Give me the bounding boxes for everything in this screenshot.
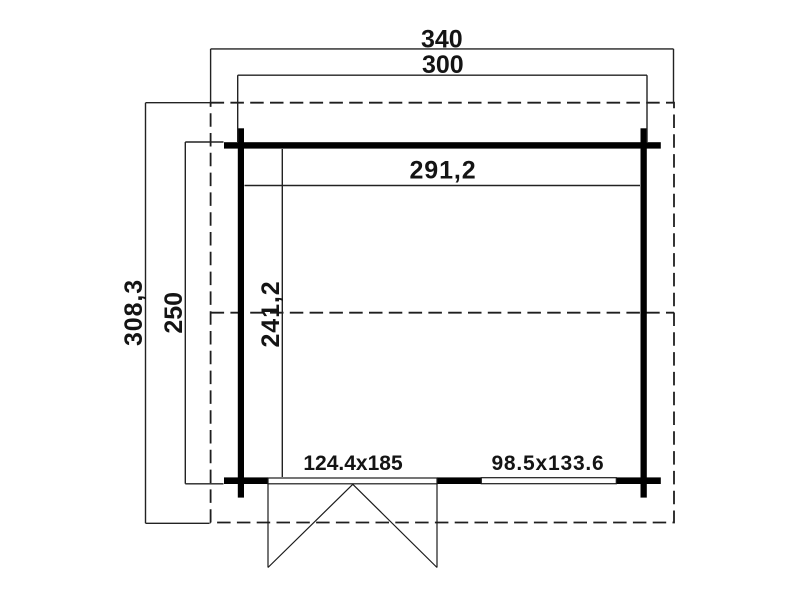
svg-text:340: 340 (421, 25, 463, 53)
svg-text:300: 300 (422, 51, 464, 79)
svg-text:308,3: 308,3 (120, 279, 148, 346)
svg-text:291,2: 291,2 (409, 157, 476, 185)
svg-text:250: 250 (160, 292, 188, 334)
svg-text:98.5x133.6: 98.5x133.6 (491, 452, 604, 475)
svg-text:241,2: 241,2 (257, 280, 285, 347)
svg-text:124.4x185: 124.4x185 (303, 452, 403, 475)
